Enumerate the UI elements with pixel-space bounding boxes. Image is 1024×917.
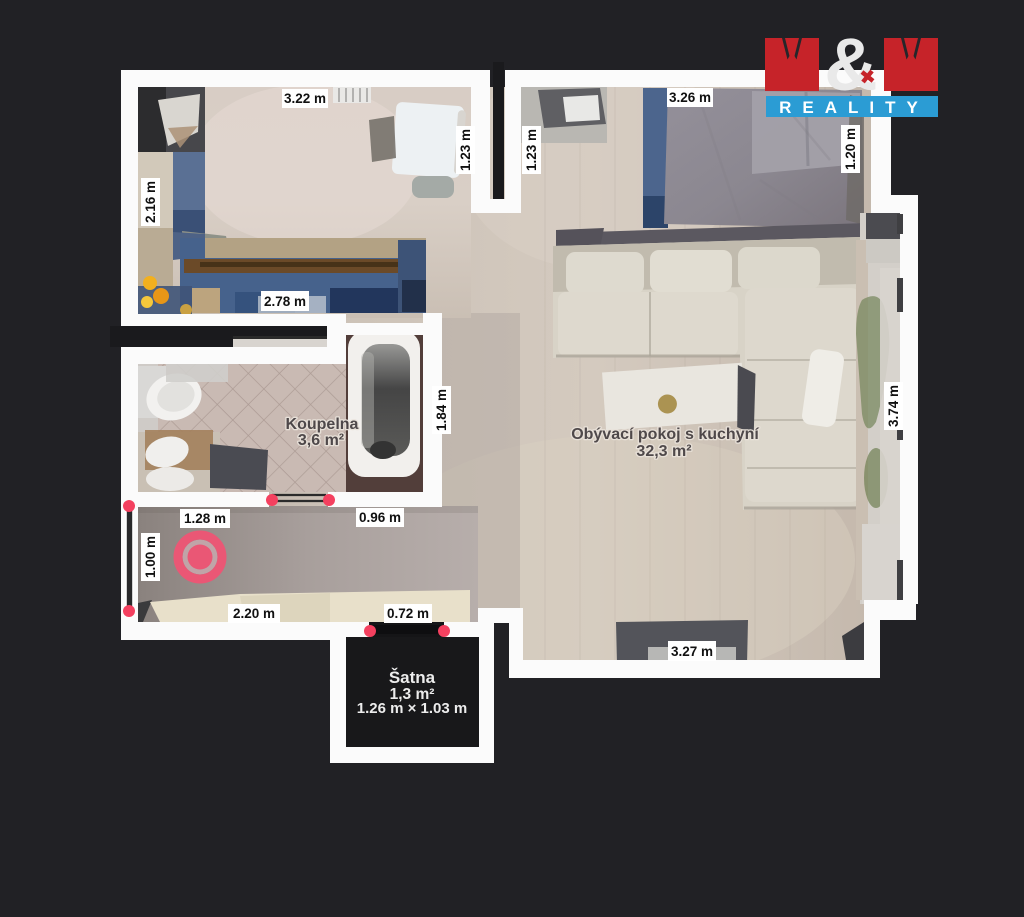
svg-text:2.78 m: 2.78 m xyxy=(264,294,306,309)
svg-text:Obývací pokoj s kuchyní: Obývací pokoj s kuchyní xyxy=(571,426,759,443)
svg-text:1.00 m: 1.00 m xyxy=(143,536,158,578)
svg-text:&: & xyxy=(824,23,877,106)
svg-text:1.84 m: 1.84 m xyxy=(434,389,449,431)
svg-text:Šatna: Šatna xyxy=(389,668,436,687)
svg-text:3.74 m: 3.74 m xyxy=(886,385,901,427)
svg-text:3.26 m: 3.26 m xyxy=(669,90,711,105)
svg-text:1.23 m: 1.23 m xyxy=(458,129,473,171)
svg-text:REALITY: REALITY xyxy=(779,98,929,117)
svg-text:Koupelna: Koupelna xyxy=(286,416,359,433)
svg-text:0.96 m: 0.96 m xyxy=(359,510,401,525)
svg-text:1.28 m: 1.28 m xyxy=(184,511,226,526)
svg-text:1.23 m: 1.23 m xyxy=(524,129,539,171)
svg-text:3,6 m²: 3,6 m² xyxy=(298,432,344,449)
svg-text:3.27 m: 3.27 m xyxy=(671,644,713,659)
svg-text:32,3 m²: 32,3 m² xyxy=(636,443,691,460)
svg-text:1.26 m × 1.03 m: 1.26 m × 1.03 m xyxy=(357,700,468,717)
svg-text:2.16 m: 2.16 m xyxy=(143,181,158,223)
svg-text:3.22 m: 3.22 m xyxy=(284,91,326,106)
svg-text:2.20 m: 2.20 m xyxy=(233,606,275,621)
svg-text:1.20 m: 1.20 m xyxy=(843,128,858,170)
svg-text:0.72 m: 0.72 m xyxy=(387,606,429,621)
